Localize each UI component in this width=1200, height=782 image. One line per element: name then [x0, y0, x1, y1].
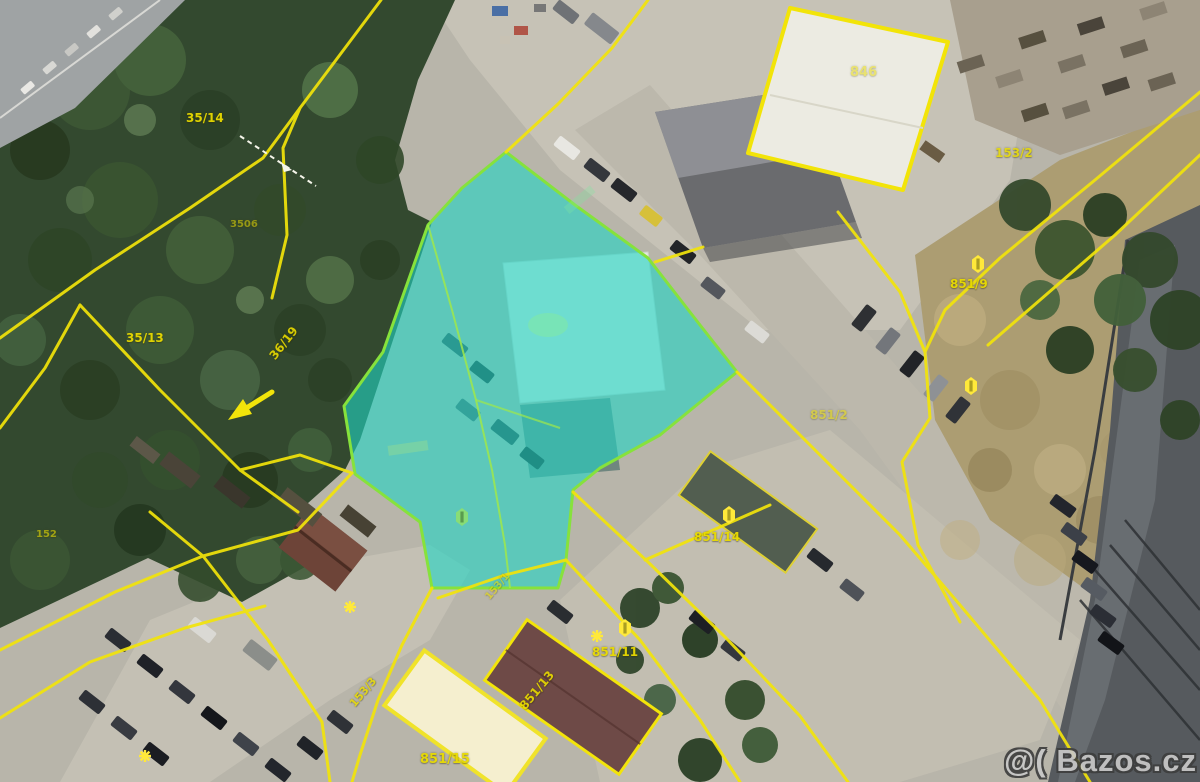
parcel-labels-layer: 35/14350635/1336/19153/2846851/9851/2851…	[0, 0, 1200, 782]
parcel-label-851-9: 851/9	[950, 278, 988, 290]
bazos-watermark: @( Bazos.cz	[1004, 743, 1197, 779]
parcel-label-851-15: 851/15	[420, 753, 470, 766]
parcel-label-153-3: 153/3	[348, 675, 379, 709]
parcel-label-851-14: 851/14	[694, 531, 740, 543]
parcel-label-3506: 3506	[230, 220, 258, 230]
parcel-label-153-2: 153/2	[995, 147, 1033, 159]
parcel-label-851-2: 851/2	[810, 409, 848, 421]
parcel-label-152: 152	[36, 530, 57, 540]
parcel-label-846: 846	[850, 66, 877, 79]
parcel-label-153-1: 153/1	[484, 572, 512, 603]
parcel-label-36-19: 36/19	[267, 325, 300, 362]
parcel-label-35-13: 35/13	[126, 332, 164, 344]
parcel-label-851-13: 851/13	[517, 669, 556, 712]
parcel-label-35-14: 35/14	[186, 112, 224, 124]
aerial-cadastral-map: 35/14350635/1336/19153/2846851/9851/2851…	[0, 0, 1200, 782]
parcel-label-851-11: 851/11	[592, 646, 638, 658]
